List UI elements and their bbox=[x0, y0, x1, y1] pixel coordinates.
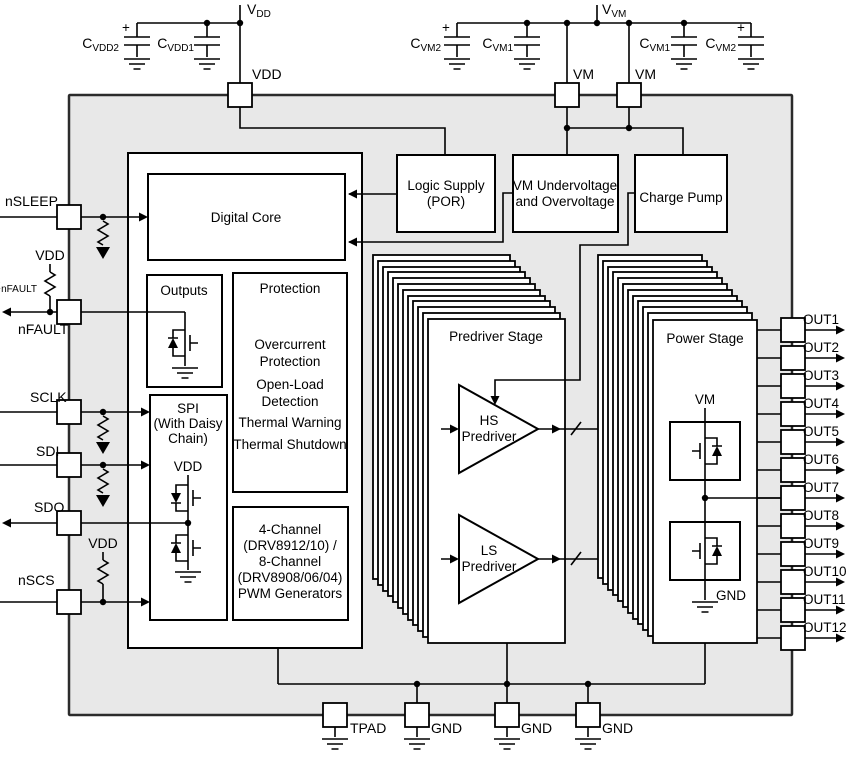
predriver-title: Predriver Stage bbox=[449, 329, 543, 344]
pin-gnd-2 bbox=[495, 703, 519, 727]
pin-nsleep-label: nSLEEP bbox=[5, 193, 58, 209]
pin-vm-2 bbox=[617, 83, 641, 107]
digital-core-label: Digital Core bbox=[211, 210, 282, 225]
pin-gnd1-label: GND bbox=[431, 720, 462, 736]
protection-title: Protection bbox=[260, 281, 321, 296]
spi-line1: SPI bbox=[177, 401, 199, 416]
spi-vdd-label: VDD bbox=[174, 459, 203, 474]
pin-out7 bbox=[781, 486, 805, 510]
pwm-line4: (DRV8908/06/04) bbox=[238, 570, 343, 585]
pin-out1 bbox=[781, 318, 805, 342]
pin-out8-label: OUT8 bbox=[803, 508, 839, 523]
cvdd2-label: CVDD2 bbox=[82, 35, 119, 54]
cvm2-right-plus: + bbox=[737, 20, 745, 35]
spi-line3: Chain) bbox=[168, 431, 208, 446]
cvdd2-plus: + bbox=[122, 20, 130, 35]
power-stage-title: Power Stage bbox=[666, 331, 743, 346]
cvm2-left-label: CVM2 bbox=[410, 35, 441, 54]
vvm-supply-label: VVM bbox=[602, 1, 626, 20]
spi-line2: (With Daisy bbox=[153, 416, 222, 431]
block-diagram: VDD VVM CVDD2 + CVDD1 CVM2 + CVM1 CVM1 C… bbox=[0, 0, 846, 758]
power-vm-label: VM bbox=[695, 392, 715, 407]
pin-out9-label: OUT9 bbox=[803, 536, 839, 551]
pin-out9 bbox=[781, 542, 805, 566]
outputs-label: Outputs bbox=[160, 283, 208, 298]
pin-out4-label: OUT4 bbox=[803, 396, 839, 411]
pin-out4 bbox=[781, 402, 805, 426]
pin-vm-1 bbox=[555, 83, 579, 107]
pin-out8 bbox=[781, 514, 805, 538]
pin-out5 bbox=[781, 430, 805, 454]
cvm2-right-label: CVM2 bbox=[705, 35, 736, 54]
pin-sdi-label: SDI bbox=[36, 443, 59, 459]
pin-nfault-label: nFAULT bbox=[18, 321, 69, 337]
hs-predriver-line1: HS bbox=[480, 413, 499, 428]
charge-pump-label: Charge Pump bbox=[639, 190, 722, 205]
protection-line4: Detection bbox=[261, 394, 318, 409]
protection-line3: Open-Load bbox=[256, 377, 324, 392]
cvm1-left-label: CVM1 bbox=[482, 35, 513, 54]
rnfault-label: RnFAULT bbox=[0, 276, 37, 295]
pin-out5-label: OUT5 bbox=[803, 424, 839, 439]
pin-out1-label: OUT1 bbox=[803, 312, 839, 327]
pin-out6 bbox=[781, 458, 805, 482]
ls-predriver-line2: Predriver bbox=[462, 559, 517, 574]
pin-nscs bbox=[57, 590, 81, 614]
pin-vm1-label: VM bbox=[573, 66, 594, 82]
pin-gnd2-label: GND bbox=[521, 720, 552, 736]
pin-out10-label: OUT10 bbox=[803, 564, 846, 579]
pin-out10 bbox=[781, 570, 805, 594]
pin-gnd-1 bbox=[405, 703, 429, 727]
pin-out2-label: OUT2 bbox=[803, 340, 839, 355]
protection-line5: Thermal Warning bbox=[238, 415, 341, 430]
logic-supply-line1: Logic Supply bbox=[407, 178, 485, 193]
ls-predriver-line1: LS bbox=[481, 543, 498, 558]
pin-sclk-label: SCLK bbox=[30, 389, 67, 405]
cvm2-left-plus: + bbox=[442, 20, 450, 35]
pin-out3-label: OUT3 bbox=[803, 368, 839, 383]
cvm1-right-label: CVM1 bbox=[639, 35, 670, 54]
protection-line6: Thermal Shutdown bbox=[233, 437, 346, 452]
protection-line1: Overcurrent bbox=[254, 337, 326, 352]
pin-gnd-3 bbox=[576, 703, 600, 727]
pin-gnd3-label: GND bbox=[602, 720, 633, 736]
pin-vdd-label: VDD bbox=[252, 66, 282, 82]
pin-vm2-label: VM bbox=[635, 66, 656, 82]
predriver-front-box bbox=[428, 319, 565, 643]
pwm-line1: 4-Channel bbox=[259, 522, 321, 537]
pin-tpad-label: TPAD bbox=[350, 720, 386, 736]
pin-sdi bbox=[57, 453, 81, 477]
vdd-ref-nscs: VDD bbox=[88, 535, 118, 551]
pin-out12 bbox=[781, 626, 805, 650]
pwm-line5: PWM Generators bbox=[238, 586, 343, 601]
pwm-line3: 8-Channel bbox=[259, 554, 321, 569]
pin-out3 bbox=[781, 374, 805, 398]
pwm-line2: (DRV8912/10) / bbox=[243, 538, 337, 553]
pin-out12-label: OUT12 bbox=[803, 620, 846, 635]
pin-sdo-label: SDO bbox=[34, 499, 64, 515]
diagram-svg: VDD VVM CVDD2 + CVDD1 CVM2 + CVM1 CVM1 C… bbox=[0, 0, 846, 758]
pin-out2 bbox=[781, 346, 805, 370]
protection-line2: Protection bbox=[260, 354, 321, 369]
pin-vdd bbox=[228, 83, 252, 107]
pin-out11 bbox=[781, 598, 805, 622]
cvdd1-label: CVDD1 bbox=[157, 35, 194, 54]
logic-supply-line2: (POR) bbox=[427, 194, 465, 209]
pin-nscs-label: nSCS bbox=[18, 572, 55, 588]
vdd-supply-label: VDD bbox=[247, 1, 271, 20]
pin-out6-label: OUT6 bbox=[803, 452, 839, 467]
vm-monitor-line1: VM Undervoltage bbox=[513, 178, 617, 193]
vm-monitor-line2: and Overvoltage bbox=[515, 194, 614, 209]
hs-predriver-line2: Predriver bbox=[462, 429, 517, 444]
pin-out7-label: OUT7 bbox=[803, 480, 839, 495]
pin-nsleep bbox=[57, 205, 81, 229]
rnfault-resistor bbox=[45, 272, 55, 296]
pin-tpad bbox=[323, 703, 347, 727]
power-gnd-label: GND bbox=[716, 588, 746, 603]
vdd-ref-nfault: VDD bbox=[35, 247, 65, 263]
pin-out11-label: OUT11 bbox=[803, 592, 846, 607]
